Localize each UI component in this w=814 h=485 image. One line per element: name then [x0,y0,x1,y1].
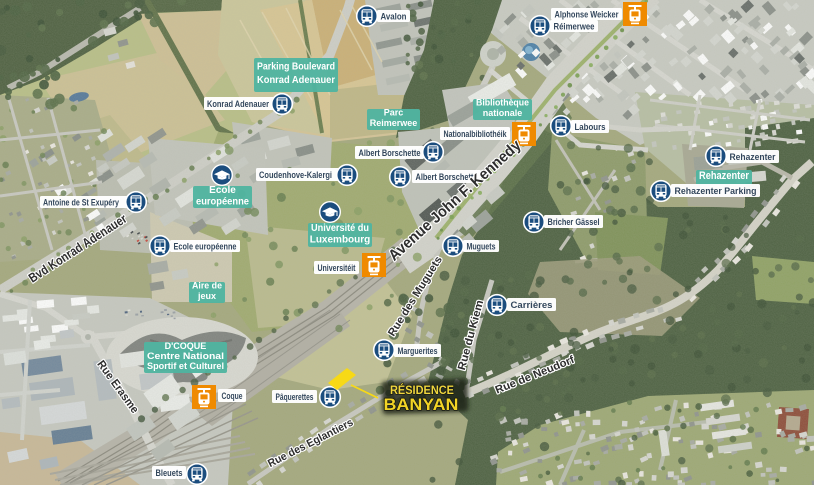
svg-text:Antoine de St Exupéry: Antoine de St Exupéry [43,197,120,208]
svg-text:D'COQUE: D'COQUE [165,341,207,351]
svg-text:Marguerites: Marguerites [398,346,438,357]
svg-text:Réimerwee: Réimerwee [554,21,595,32]
svg-text:Konrad Adenauer: Konrad Adenauer [257,74,335,86]
svg-text:Carrières: Carrières [511,300,553,311]
svg-text:BANYAN: BANYAN [384,395,459,414]
svg-text:Nationalbibliothéik: Nationalbibliothéik [444,129,508,140]
svg-text:Luxembourg: Luxembourg [310,234,371,245]
svg-text:Pâquerettes: Pâquerettes [276,392,314,403]
svg-text:Konrad Adenauer: Konrad Adenauer [207,99,269,110]
svg-text:Rehazenter: Rehazenter [699,170,750,182]
svg-text:jeux: jeux [197,291,216,301]
svg-text:Bibliothèque: Bibliothèque [476,98,529,108]
svg-text:Ecole européenne: Ecole européenne [174,241,237,252]
svg-text:Albert Borschette: Albert Borschette [359,148,421,159]
svg-text:Muguets: Muguets [467,241,496,252]
svg-text:Aire de: Aire de [192,281,222,291]
svg-text:Sportif et Culturel: Sportif et Culturel [147,361,224,371]
svg-text:Rehazenter Parking: Rehazenter Parking [675,186,757,197]
svg-text:nationale: nationale [483,108,523,118]
svg-text:Centre National: Centre National [147,351,224,361]
svg-text:Ecole: Ecole [209,185,236,196]
svg-text:Coudenhove-Kalergi: Coudenhove-Kalergi [259,170,332,181]
svg-text:Reimerwee: Reimerwee [370,118,418,128]
svg-text:Parc: Parc [384,108,404,118]
svg-text:Parking Boulevard: Parking Boulevard [257,61,335,73]
svg-text:Alphonse Weicker: Alphonse Weicker [555,9,619,20]
svg-text:Bleuets: Bleuets [156,468,183,479]
svg-text:Rehazenter: Rehazenter [730,152,776,163]
svg-text:Bricher Gässel: Bricher Gässel [548,217,600,228]
svg-text:Universitéit: Universitéit [318,263,357,274]
svg-text:Labours: Labours [575,122,606,133]
svg-text:Coque: Coque [222,391,243,402]
svg-text:Université du: Université du [311,223,369,234]
svg-text:européenne: européenne [196,196,249,207]
svg-text:Avalon: Avalon [381,11,407,22]
